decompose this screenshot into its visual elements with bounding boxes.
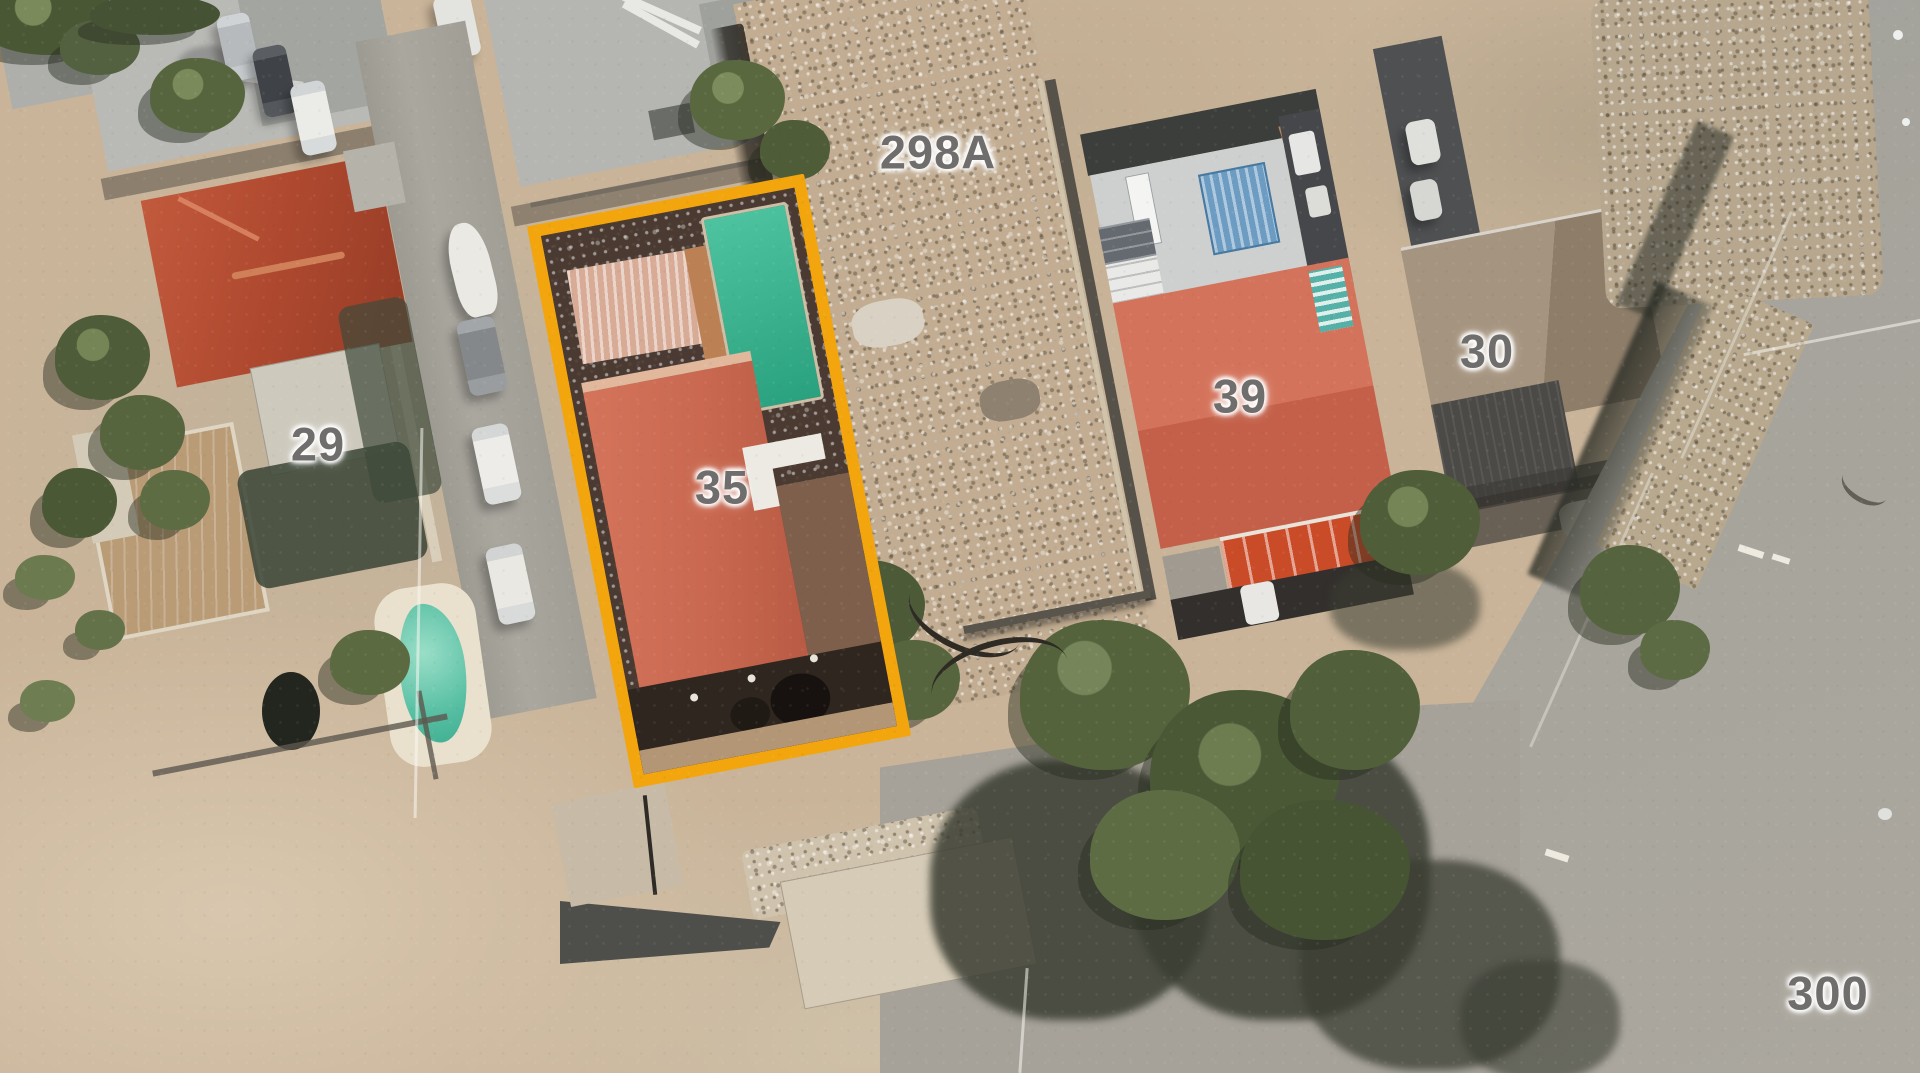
tree-left-2 [100,395,185,470]
shrub-bottom-left-2 [75,610,125,650]
tree-by-road [1360,470,1480,575]
lot-label-298a: 298A [880,125,996,180]
roof-ridge [231,251,345,280]
parcel-label-35: 35 [695,460,749,515]
tree-big-5 [1240,800,1410,940]
road-paint-splat [1878,808,1892,820]
shrub-bottom-left-1 [15,555,75,600]
parcel-label-39: 39 [1213,369,1267,424]
tree-left-1 [55,315,150,400]
tree-big-4 [1290,650,1420,770]
shrub-bottom-left-3 [20,680,75,722]
tree-left-3 [42,468,117,538]
pale-path [551,782,684,907]
tree-left-4 [140,470,210,530]
tree-over-shed-2 [760,120,830,180]
road-label-300: 300 [1787,966,1868,1021]
aerial-map[interactable]: 29 35 39 30 298A 300 [0,0,1920,1073]
shrub-near-pool [330,630,410,695]
tree-near-building [150,58,245,133]
parcel-label-29: 29 [291,417,345,472]
dark-water-tank [262,672,320,750]
tree-big-3 [1090,790,1240,920]
parcel-label-30: 30 [1460,324,1514,379]
shed-door [648,103,695,140]
road-paint-dot-2 [1902,118,1910,126]
tree-road-verge-2 [1640,620,1710,680]
car-on-paving [1239,580,1280,626]
road-paint-dot-1 [1893,30,1903,40]
roof-hip-line [177,196,259,241]
tree-shadow-4 [1460,960,1620,1073]
